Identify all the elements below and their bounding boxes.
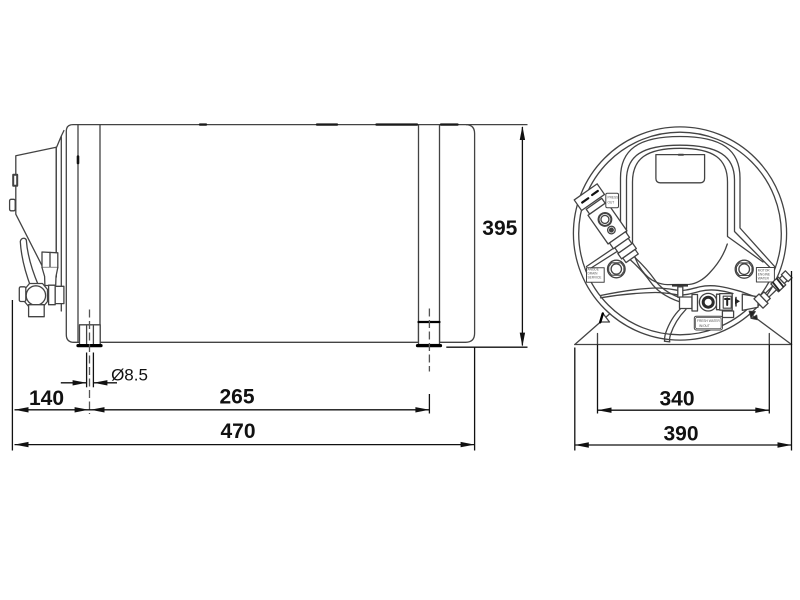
svg-text:PRESS: PRESS [608, 196, 619, 200]
svg-text:IN/OUT: IN/OUT [699, 324, 710, 328]
svg-text:OUT: OUT [608, 201, 615, 205]
svg-text:340: 340 [659, 388, 694, 411]
svg-text:265: 265 [219, 385, 254, 408]
svg-text:FRESH WATER: FRESH WATER [697, 319, 721, 323]
svg-text:WATER: WATER [758, 277, 770, 281]
svg-text:SERVICE: SERVICE [588, 276, 602, 280]
svg-text:Ø8.5: Ø8.5 [111, 366, 148, 385]
svg-text:395: 395 [482, 217, 517, 240]
svg-text:470: 470 [220, 420, 255, 443]
svg-text:390: 390 [663, 422, 698, 445]
svg-text:140: 140 [29, 387, 64, 410]
